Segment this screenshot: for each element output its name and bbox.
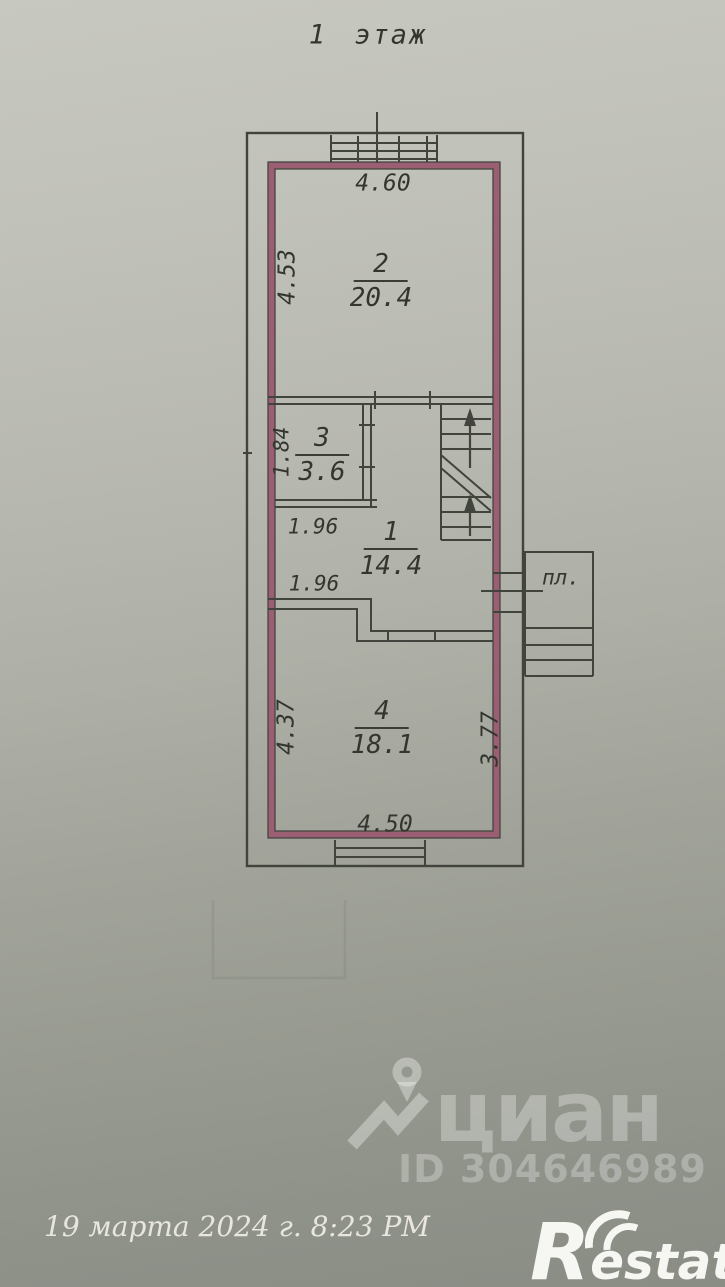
room-4-number: 4 xyxy=(355,697,409,729)
date-stamp: 19 марта 2024 г. 8:23 PM xyxy=(44,1210,430,1243)
porch-doorway xyxy=(481,573,543,612)
room-1-label: 1 14.4 xyxy=(360,518,423,580)
window-top xyxy=(331,112,437,163)
room-1-number: 1 xyxy=(364,518,418,550)
dim-room2-height: 4.53 xyxy=(277,249,300,304)
room-4-area: 18.1 xyxy=(351,729,414,760)
wall-hall-room4 xyxy=(268,599,493,641)
dim-room4-height-left: 4.37 xyxy=(276,699,299,754)
floorplan-scan: 1 этаж 4.60 4.53 1.84 1.96 1.96 4.37 3.7… xyxy=(0,0,725,1287)
cian-watermark-text: циан xyxy=(434,1066,662,1158)
window-bottom xyxy=(335,840,425,866)
wall-room2-hall xyxy=(268,391,493,409)
room-3-label: 3 3.6 xyxy=(295,424,349,486)
dim-room3-width: 1.96 xyxy=(288,517,339,538)
dim-niche-width: 1.96 xyxy=(289,574,340,595)
restate-logo-text: Restate xyxy=(530,1216,725,1287)
room-4-label: 4 18.1 xyxy=(351,697,414,759)
room-1-area: 14.4 xyxy=(360,550,423,581)
room-3-number: 3 xyxy=(295,424,349,456)
dim-room4-width: 4.50 xyxy=(357,814,412,837)
room-2-label: 2 20.4 xyxy=(350,250,413,312)
room-3-area: 3.6 xyxy=(299,456,346,487)
page-bleed-through xyxy=(213,900,345,978)
room-2-area: 20.4 xyxy=(350,282,413,313)
dim-top-width: 4.60 xyxy=(355,173,410,196)
porch-label: пл. xyxy=(542,568,580,589)
page-title: 1 этаж xyxy=(309,22,428,49)
stair-direction-arrows xyxy=(464,408,476,536)
dim-room3-height: 1.84 xyxy=(272,427,293,478)
staircase xyxy=(441,404,491,540)
listing-id: ID 304646989 xyxy=(398,1147,707,1191)
room-2-number: 2 xyxy=(354,250,408,282)
dim-room4-height-right: 3.77 xyxy=(480,711,503,766)
